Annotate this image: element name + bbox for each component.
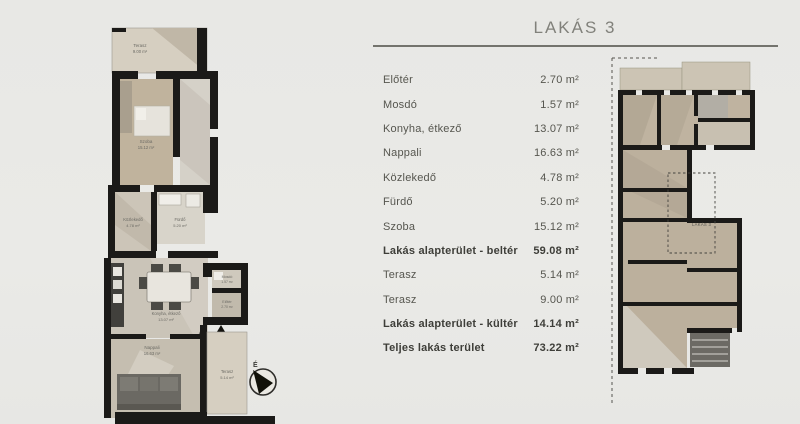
table-row: Lakás alapterület - beltér59.08 m²	[383, 239, 579, 263]
svg-text:1.57 m²: 1.57 m²	[221, 280, 233, 284]
area-table: Előtér2.70 m²Mosdó1.57 m²Konyha, étkező1…	[383, 68, 579, 361]
area-value: 15.12 m²	[534, 221, 579, 233]
table-row: Lakás alapterület - kültér14.14 m²	[383, 312, 579, 336]
room-label: Szoba	[383, 221, 415, 233]
room-terasz-top: Terasz 9.00 m²	[112, 28, 207, 75]
sofa	[117, 374, 181, 410]
room-label: Teljes lakás terület	[383, 342, 485, 354]
table-row: Előtér2.70 m²	[383, 68, 579, 92]
area-value: 5.14 m²	[540, 269, 579, 281]
svg-text:Szoba: Szoba	[140, 139, 153, 144]
area-value: 2.70 m²	[540, 74, 579, 86]
table-row: Terasz9.00 m²	[383, 288, 579, 312]
area-value: 73.22 m²	[533, 342, 579, 354]
area-value: 13.07 m²	[534, 123, 579, 135]
svg-text:5.14 m²: 5.14 m²	[220, 375, 234, 380]
table-row: Konyha, étkező13.07 m²	[383, 117, 579, 141]
room-label: Közlekedő	[383, 172, 436, 184]
top-band	[0, 0, 800, 6]
svg-text:É: É	[253, 360, 258, 369]
room-kozlekedo-furdo: Közlekedő 4.78 m² Fürdő 5.20 m²	[108, 185, 218, 258]
svg-text:2.70 m²: 2.70 m²	[221, 305, 233, 309]
building-vertical-wing	[618, 150, 742, 374]
room-label: Terasz	[383, 294, 417, 306]
title-underline	[373, 45, 778, 47]
svg-text:16.63 m²: 16.63 m²	[144, 351, 161, 356]
svg-text:Konyha, étkező: Konyha, étkező	[152, 311, 182, 316]
svg-text:13.07 m²: 13.07 m²	[158, 317, 174, 322]
area-value: 1.57 m²	[540, 99, 579, 111]
room-label: Lakás alapterület - kültér	[383, 318, 518, 330]
table-row: Nappali16.63 m²	[383, 141, 579, 165]
svg-text:Mosdó: Mosdó	[222, 275, 233, 279]
apartment-floor-plan: Terasz 9.00 m² Szoba 15.12 m² Közl	[100, 20, 300, 424]
room-label: Mosdó	[383, 99, 417, 111]
table-row: Közlekedő4.78 m²	[383, 166, 579, 190]
table-row: Teljes lakás terület73.22 m²	[383, 336, 579, 360]
balcony-stairs	[690, 333, 730, 367]
table-row: Mosdó1.57 m²	[383, 92, 579, 116]
area-value: 5.20 m²	[540, 196, 579, 208]
room-label: Konyha, étkező	[383, 123, 462, 135]
room-label: Előtér	[383, 74, 413, 86]
area-value: 9.00 m²	[540, 294, 579, 306]
table-row: Szoba15.12 m²	[383, 214, 579, 238]
svg-text:Terasz: Terasz	[221, 369, 233, 374]
svg-text:Terasz: Terasz	[133, 43, 147, 48]
room-nappali: Nappali 16.63 m²	[111, 325, 207, 418]
svg-text:Nappali: Nappali	[144, 345, 159, 350]
north-arrow-icon: É	[250, 360, 276, 395]
area-value: 16.63 m²	[534, 147, 579, 159]
area-value: 4.78 m²	[540, 172, 579, 184]
area-value: 59.08 m²	[533, 245, 579, 257]
area-value: 14.14 m²	[533, 318, 579, 330]
svg-text:5.20 m²: 5.20 m²	[173, 223, 187, 228]
room-label: Fürdő	[383, 196, 413, 208]
room-label: Terasz	[383, 269, 417, 281]
page-title: LAKÁS 3	[375, 18, 775, 38]
table-row: Fürdő5.20 m²	[383, 190, 579, 214]
svg-text:Fürdő: Fürdő	[175, 217, 187, 222]
svg-text:15.12 m²: 15.12 m²	[138, 145, 155, 150]
svg-text:4.78 m²: 4.78 m²	[126, 223, 140, 228]
room-label: Nappali	[383, 147, 422, 159]
svg-text:9.00 m²: 9.00 m²	[133, 49, 148, 54]
room-terasz-bottom: Terasz 5.14 m²	[207, 332, 247, 414]
building-top-wing	[618, 62, 755, 150]
walls-bottom	[115, 412, 275, 424]
apartment-label: LAKÁS 3	[692, 222, 711, 227]
svg-text:Előtér: Előtér	[222, 300, 232, 304]
table-row: Terasz5.14 m²	[383, 263, 579, 287]
room-label: Lakás alapterület - beltér	[383, 245, 518, 257]
overview-key-plan: LAKÁS 3	[602, 52, 800, 412]
svg-text:Közlekedő: Közlekedő	[123, 217, 143, 222]
room-szoba: Szoba 15.12 m²	[120, 79, 210, 185]
